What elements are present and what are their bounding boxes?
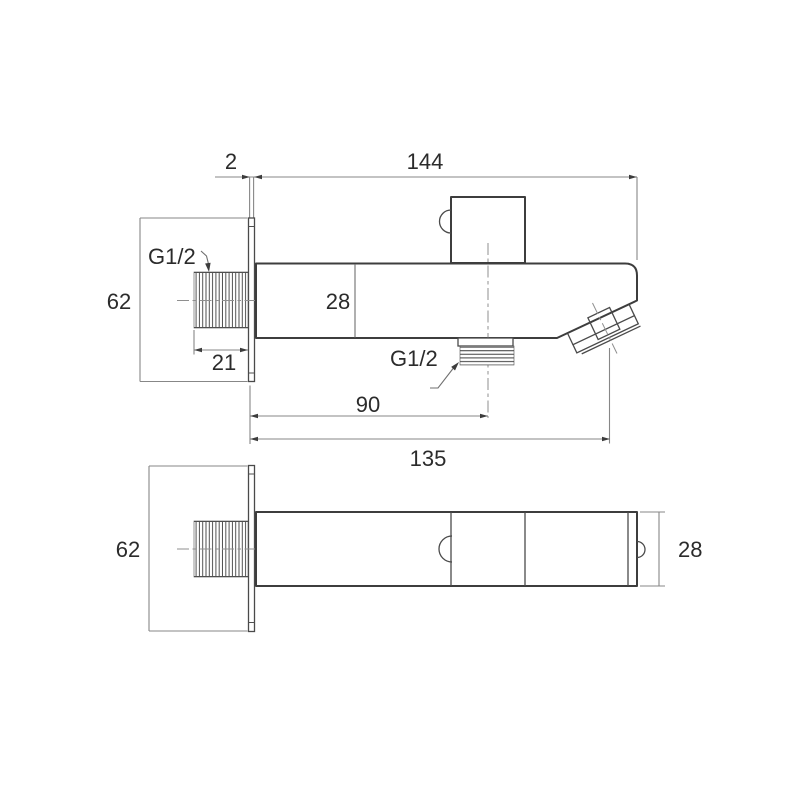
inlet-thread-label: G1/2	[148, 244, 196, 269]
technical-drawing-canvas: 2 144 62	[0, 0, 800, 800]
outlet-flange	[458, 338, 513, 346]
outlet-thread-label: G1/2	[390, 346, 438, 371]
dim-plate-height-side-label: 62	[107, 289, 131, 314]
dim-body-height-side-label: 28	[326, 289, 350, 314]
spout-body-side	[256, 264, 637, 339]
hand-shower-holder-block	[440, 197, 526, 263]
spout-body-plan	[256, 512, 645, 586]
dim-body-width-plan-label: 28	[678, 537, 702, 562]
technical-drawing-page: 2 144 62	[0, 0, 800, 800]
dim-outlet-center-distance-label: 90	[356, 392, 380, 417]
dim-inlet-thread-length-label: 21	[212, 350, 236, 375]
dim-overall-reach-label: 135	[410, 446, 447, 471]
wall-plate-side	[249, 218, 255, 382]
dim-plate-thickness-label: 2	[225, 149, 237, 174]
dim-plate-height-plan-label: 62	[116, 537, 140, 562]
dim-total-length-label: 144	[407, 149, 444, 174]
drawing-background	[0, 0, 800, 800]
outlet-thread	[460, 346, 514, 365]
